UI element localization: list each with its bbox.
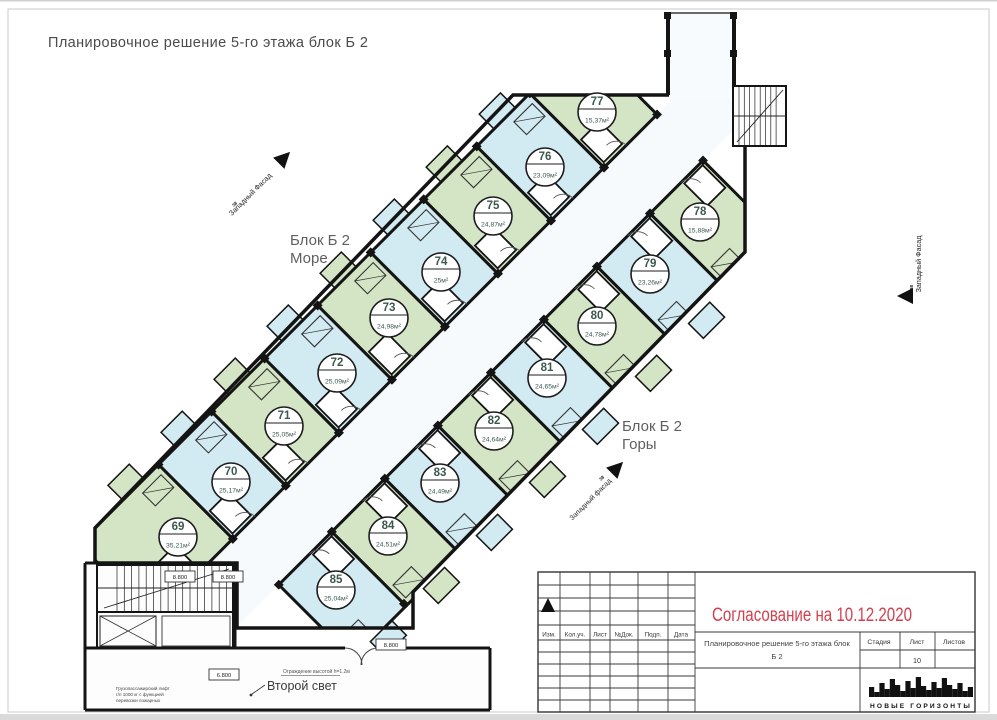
zone-sea-line2: Море (290, 250, 328, 267)
page-top-edge (0, 0, 997, 2)
zone-sea-line1: Блок Б 2 (290, 232, 350, 249)
col-izm: Изм. (542, 632, 556, 639)
apartment-area: 25,09м² (325, 379, 350, 386)
apartment-number: 85 (330, 574, 343, 586)
elevation-value: 8.800 (173, 575, 188, 581)
lift-note-line1: Грузопассажирский лифт (116, 685, 171, 691)
stage-label: Стадия (867, 639, 890, 646)
apartment-number: 77 (591, 96, 604, 108)
apartment-circle: 8324,49м² (421, 464, 459, 502)
col-list: Лист (593, 632, 607, 639)
apartment-area: 24,78м² (585, 332, 610, 339)
apartment-circle: 8224,64м² (475, 412, 513, 450)
apartment-area: 24,98м² (377, 324, 402, 331)
column-mark (578, 35, 588, 45)
apartment-circle: 8525,04м² (317, 571, 355, 609)
apartment-circle: 8124,65м² (528, 359, 566, 397)
apartment-number: 74 (435, 256, 448, 268)
apartment-circle: 7225,09м² (318, 354, 356, 392)
apartment-number: 72 (331, 357, 344, 369)
facade-text: Западный фасад (568, 477, 613, 522)
apartment-area: 24,49м² (428, 489, 453, 496)
apartment-area: 25,04м² (324, 596, 349, 603)
col-ndok: №Док. (614, 632, 633, 639)
apartment-circle: 7425м² (422, 253, 460, 291)
col-koluch: Кол.уч. (565, 632, 586, 639)
elevation-value: 6.800 (217, 673, 232, 679)
apartment-number: 78 (694, 206, 707, 218)
apartment-area: 23,09м² (533, 173, 558, 180)
sheet-title: Планировочное решение 5-го этажа блок Б … (48, 35, 368, 51)
sheet-label: Лист (910, 639, 925, 646)
doc-title-line1: Планировочное решение 5-го этажа блок (704, 639, 850, 648)
zone-mtn-line2: Горы (622, 436, 657, 453)
north-arrow-icon (273, 146, 296, 169)
apartment-area: 15,88м² (688, 228, 713, 235)
apartment-area: 25,05м² (272, 432, 297, 439)
column-mark (74, 539, 84, 549)
second-light-label: Второй свет (267, 679, 337, 693)
apartment-circle: 7623,09м² (526, 148, 564, 186)
apartment-area: 24,51м² (376, 542, 401, 549)
col-podp: Подп. (645, 632, 662, 639)
zone-mtn-line1: Блок Б 2 (622, 418, 682, 435)
apartment-number: 80 (591, 310, 604, 322)
facade-label-left: Западный Фасад 38 (227, 146, 296, 217)
facade-text: Западный Фасад (227, 170, 274, 217)
column-mark (717, 281, 727, 291)
apartment-area: 25,17м² (219, 488, 244, 495)
apartment-area: 25м² (434, 278, 449, 285)
balcony (689, 302, 725, 338)
apartment-number: 75 (487, 200, 500, 212)
apartment-circle: 6935,21м² (159, 518, 197, 556)
apartment-circle: 7815,88м² (681, 203, 719, 241)
lift-note-line2: г/п 1000 кг с функцией (116, 691, 164, 697)
column-mark (717, 281, 727, 291)
apartment-circle: 7524,87м² (474, 197, 512, 235)
apartment-number: 71 (278, 410, 291, 422)
doc-title-line2: Б 2 (771, 652, 782, 661)
apartment-circle: 7715,37м² (578, 93, 616, 131)
apartment-circle: 7324,98м² (370, 299, 408, 337)
facade-label-right: Западный Фасад 38 (897, 235, 923, 304)
drawing-sheet: Планировочное решение 5-го этажа блок Б … (0, 0, 997, 720)
apartment-circle: 8024,78м² (578, 307, 616, 345)
apartment-number: 84 (382, 520, 395, 532)
apartment-area: 24,87м² (481, 222, 506, 229)
zone-label-mountain: Блок Б 2 Горы (622, 418, 682, 453)
lift-note-line3: перевозки пожарных (116, 698, 161, 703)
page-bottom-edge (0, 714, 997, 720)
col-data: Дата (674, 632, 688, 639)
column-mark (770, 228, 780, 238)
elevation-value: 8.800 (221, 575, 236, 581)
apartment-number: 70 (225, 466, 238, 478)
facade-text: Западный Фасад (914, 235, 923, 293)
apartment-circle: 7125,05м² (265, 407, 303, 445)
title-block: Изм. Кол.уч. Лист №Док. Подп. Дата Согла… (538, 572, 975, 712)
facade-axis: 38 (909, 284, 914, 290)
sheet-number: 10 (913, 656, 921, 665)
elevation-value: 8.800 (384, 643, 399, 649)
approval-text: Согласование на 10.12.2020 (712, 605, 912, 626)
apartment-area: 35,21м² (166, 543, 191, 550)
floor-plan-svg: Планировочное решение 5-го этажа блок Б … (0, 0, 997, 720)
apartment-area: 24,64м² (482, 437, 507, 444)
apartment-number: 69 (172, 521, 185, 533)
railing-note: Ограждение высотой h=1.2м (283, 668, 350, 675)
logo-text: НОВЫЕ ГОРИЗОНТЫ (870, 703, 972, 710)
north-arrow-icon (606, 456, 629, 479)
sheets-label: Листов (943, 639, 965, 646)
corridor-extension (664, 12, 737, 99)
apartment-number: 83 (434, 467, 447, 479)
apartment-circle: 8424,51м² (369, 517, 407, 555)
stairs-top-right (733, 86, 786, 146)
apartment-area: 24,65м² (535, 384, 560, 391)
apartment-circle: 7025,17м² (212, 463, 250, 501)
apartment-number: 76 (539, 151, 552, 163)
furniture (567, 51, 598, 82)
apartment-number: 79 (644, 258, 657, 270)
apartment-area: 15,37м² (585, 118, 610, 125)
apartment-number: 73 (383, 302, 396, 314)
apartment-area: 23,26м² (638, 280, 663, 287)
facade-label-middle: Западный фасад 38 (568, 456, 629, 522)
apartment-number: 82 (488, 415, 501, 427)
apartment-circle: 7923,26м² (631, 255, 669, 293)
apartment-number: 81 (541, 362, 554, 374)
